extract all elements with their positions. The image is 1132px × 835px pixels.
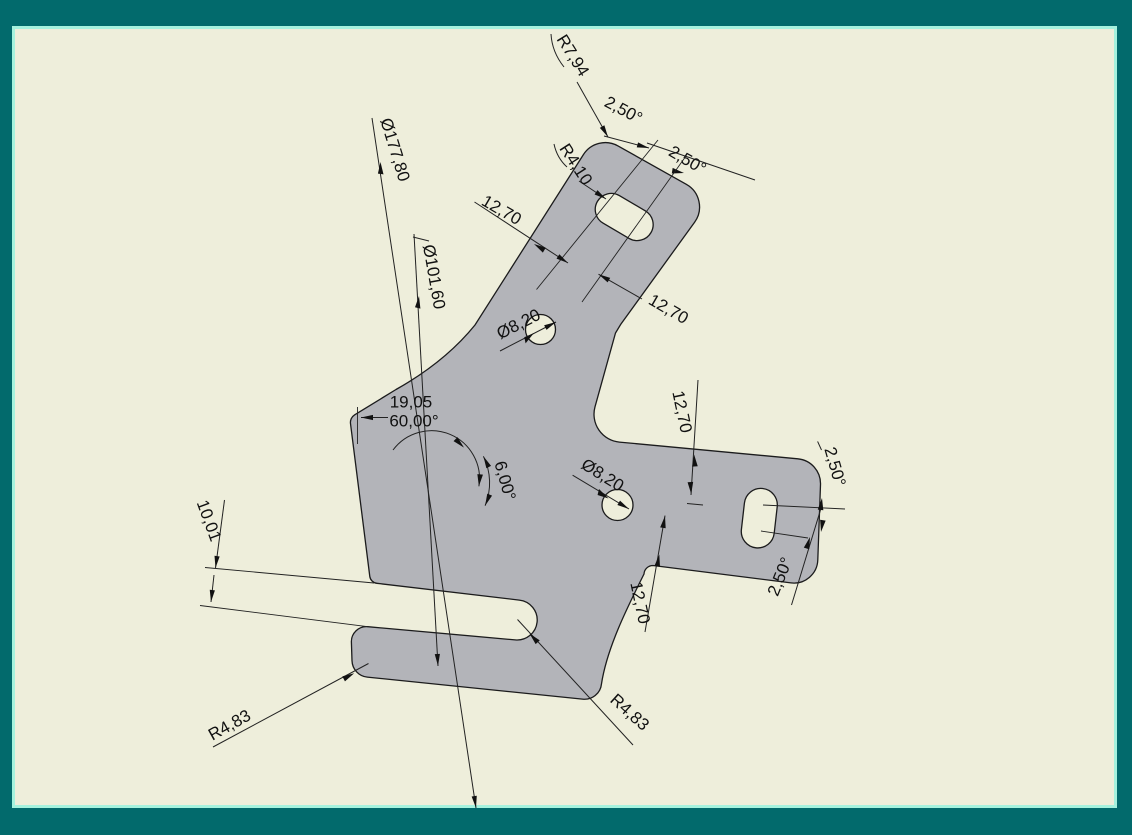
svg-text:60,00°: 60,00° <box>389 411 438 430</box>
svg-text:19,05: 19,05 <box>390 392 433 411</box>
